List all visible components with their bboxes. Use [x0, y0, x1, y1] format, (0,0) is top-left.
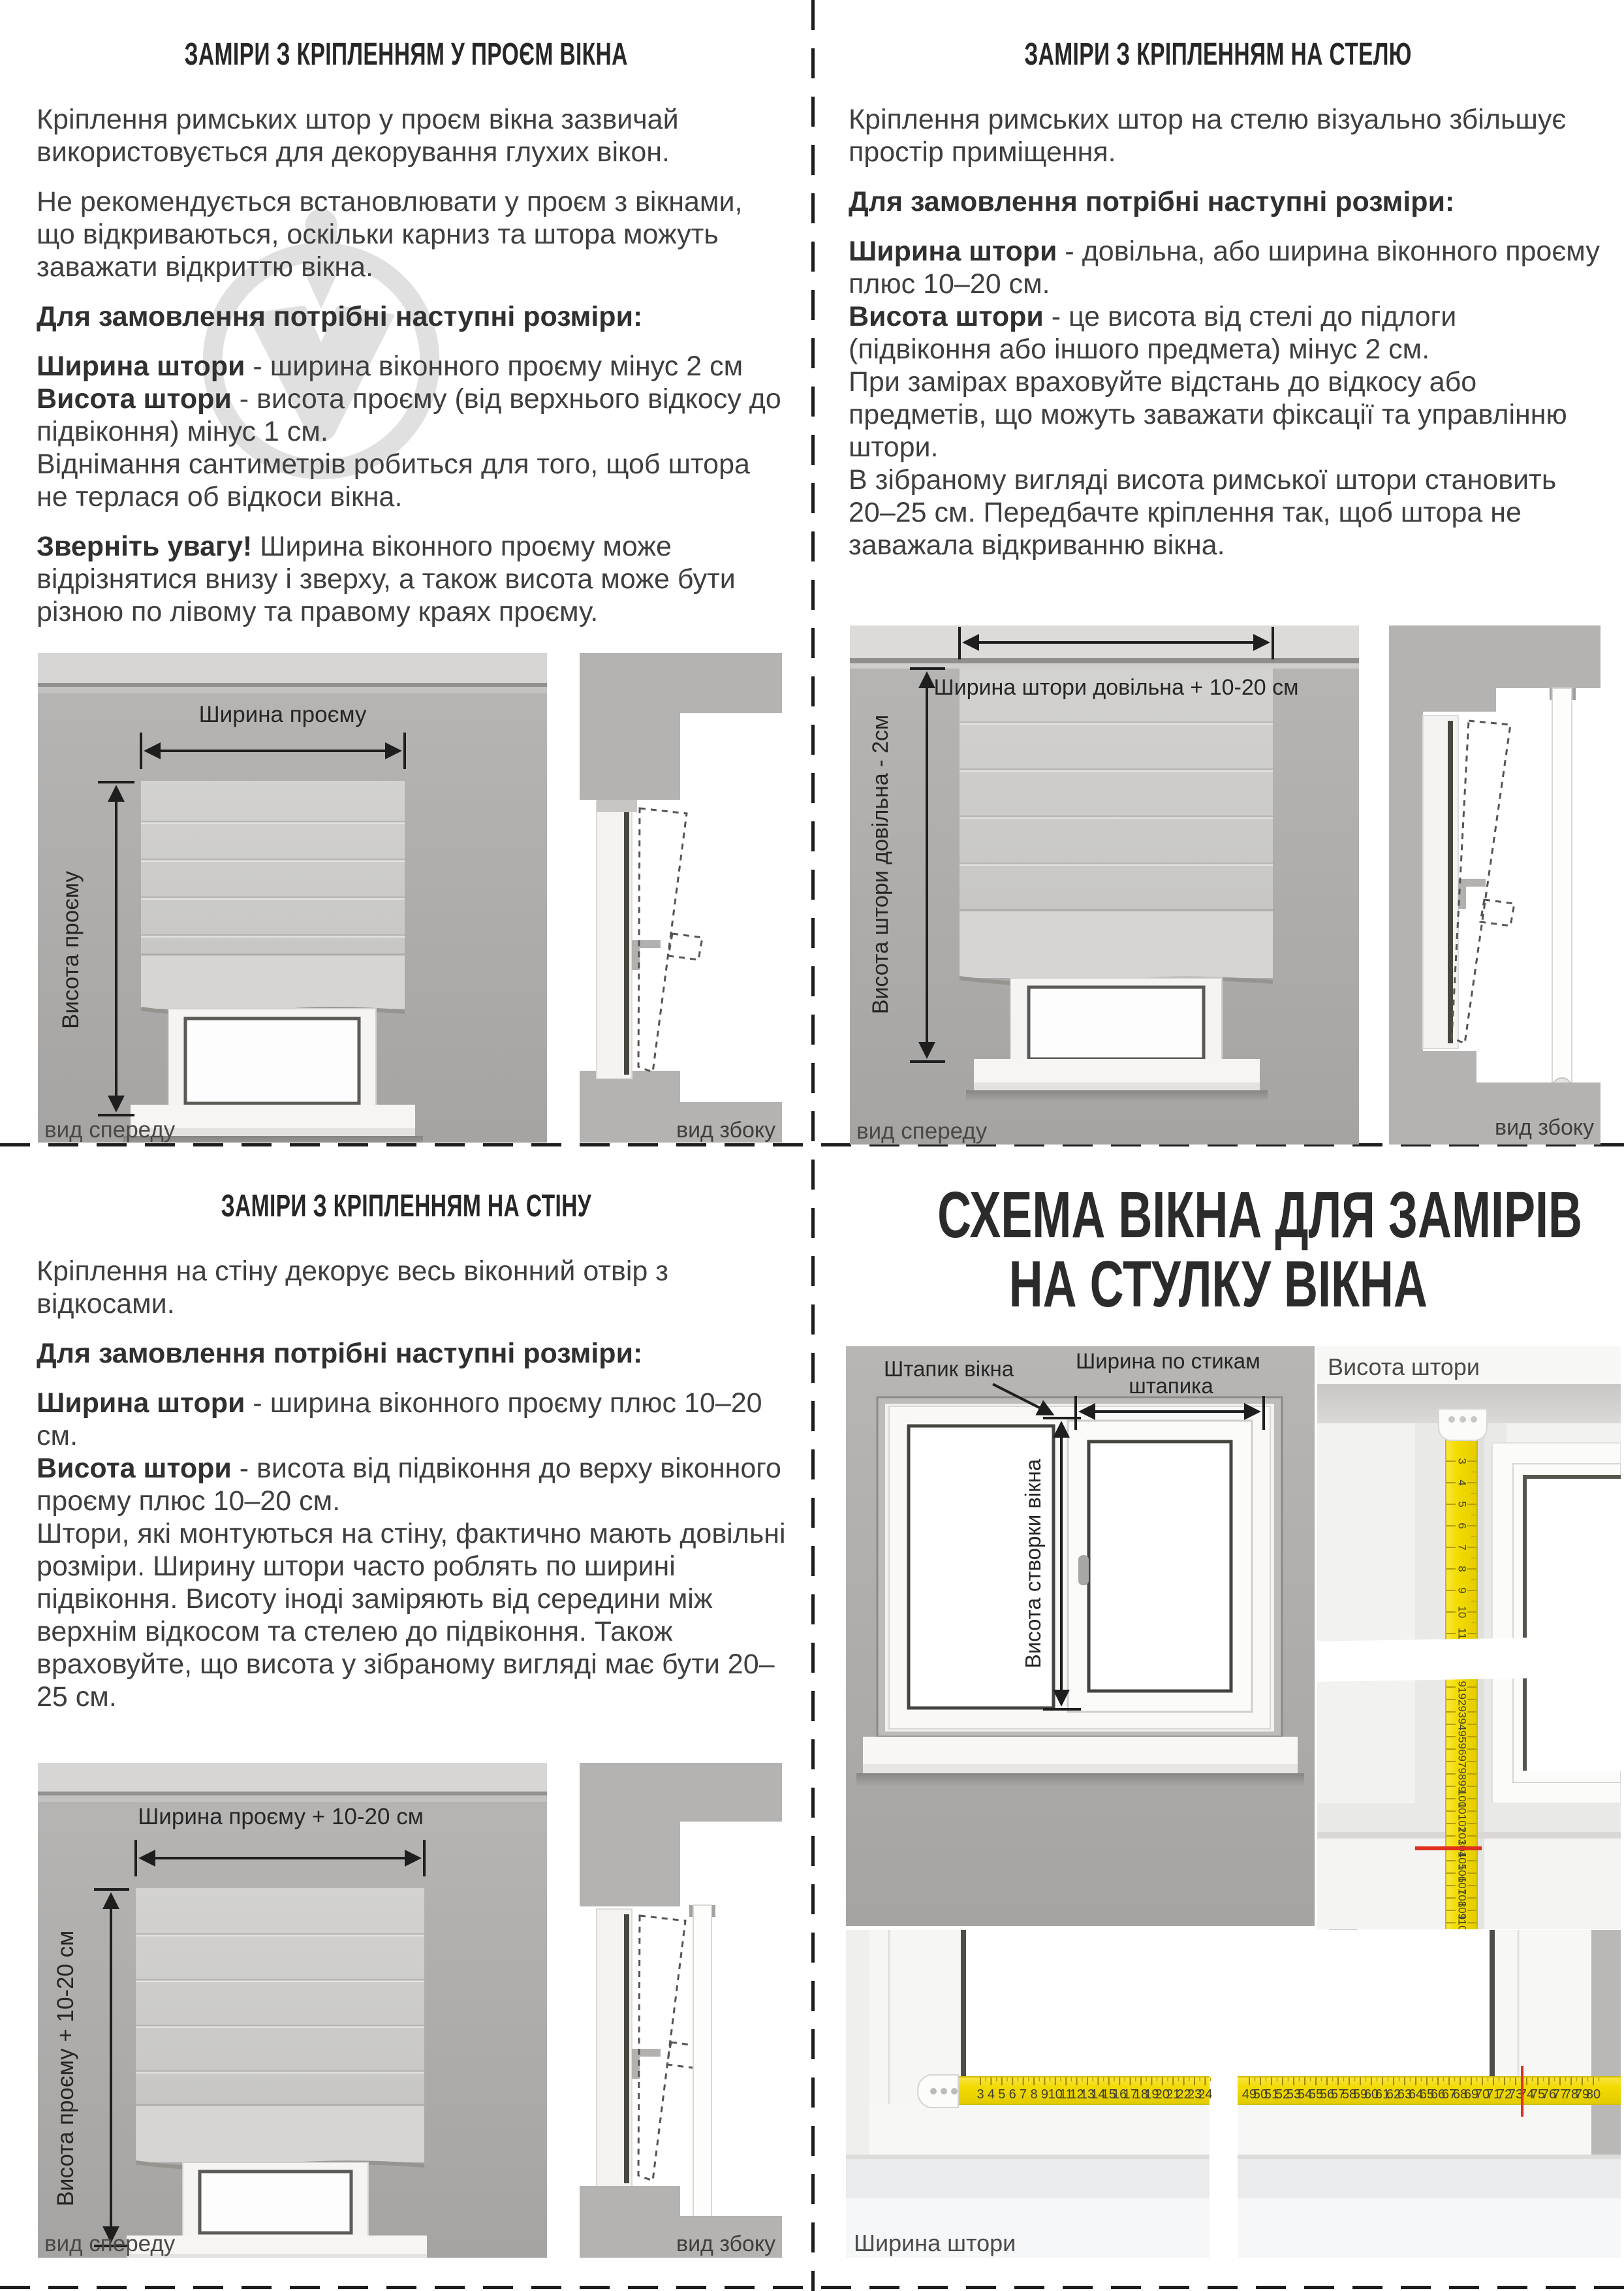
roman-blind-profile — [1550, 688, 1576, 1105]
note-paragraph: В зібраному вигляді висота римської штор… — [849, 464, 1606, 561]
tape-hook — [1439, 1409, 1487, 1440]
front-view-caption: вид спереду — [44, 2231, 176, 2256]
note-paragraph: При замірах враховуйте відстань до відко… — [849, 366, 1606, 464]
paragraph: Кріплення римських штор на стелю візуаль… — [849, 103, 1606, 168]
width-definition: Ширина штори - довільна, або ширина віко… — [849, 235, 1606, 300]
svg-text:10: 10 — [1456, 1606, 1469, 1619]
svg-text:6: 6 — [1009, 2087, 1016, 2102]
roman-blind — [136, 1888, 424, 2168]
svg-text:80: 80 — [1586, 2087, 1601, 2102]
side-view-caption: вид збоку — [676, 1118, 775, 1143]
wall-front-view-diagram: Ширина проєму + 10-20 см — [38, 1763, 547, 2258]
wall-side-view-diagram: вид збоку — [574, 1763, 782, 2258]
svg-text:4: 4 — [988, 2087, 995, 2102]
front-view-caption: вид спереду — [44, 1117, 176, 1143]
dimension-height-label: Висота штори довільна - 2см — [868, 715, 893, 1015]
tilted-sash-outline — [638, 1916, 701, 2181]
dimension-width-label: Ширина проєму + 10-20 см — [138, 1804, 424, 1829]
svg-text:8: 8 — [1030, 2087, 1037, 2102]
section-title: ЗАМІРИ З КРІПЛЕННЯМ НА СТЕЛЮ — [812, 37, 1624, 72]
window-handle-profile — [632, 2049, 661, 2079]
svg-text:95: 95 — [1456, 1731, 1469, 1743]
svg-text:8: 8 — [1456, 1566, 1469, 1572]
bottom-dashed-divider — [0, 2286, 1624, 2289]
window — [966, 978, 1268, 1101]
window-corner — [1492, 1443, 1621, 1803]
horizontal-dashed-divider — [0, 1143, 1624, 1146]
window-handle-profile — [1458, 879, 1486, 909]
svg-text:3: 3 — [976, 2087, 984, 2102]
note-paragraph: Віднімання сантиметрів робиться для того… — [37, 448, 789, 513]
right-sash-glass — [1089, 1442, 1231, 1691]
window-handle — [1078, 1555, 1089, 1585]
dimension-width-label: Ширина штори довільна + 10-20 см — [933, 675, 1298, 700]
section-title: СХЕМА ВІКНА ДЛЯ ЗАМІРІВ НА СТУЛКУ ВІКНА — [812, 1180, 1624, 1319]
glazing-bead-label: Штапик вікна — [884, 1357, 1014, 1381]
svg-text:24: 24 — [1198, 2087, 1212, 2102]
svg-text:6: 6 — [1456, 1523, 1469, 1528]
body-paragraph: Штори, які монтуються на стіну, фактично… — [37, 1517, 789, 1713]
measuring-instructions-page: ЗАМІРИ З КРІПЛЕННЯМ У ПРОЄМ ВІКНА Кріпле… — [0, 0, 1624, 2291]
svg-text:92: 92 — [1456, 1694, 1469, 1706]
svg-text:96: 96 — [1456, 1743, 1469, 1756]
side-view-caption: вид збоку — [676, 2232, 775, 2256]
dimension-width-label: Ширина проєму — [199, 702, 367, 727]
attention-paragraph: Зверніть увагу! Ширина віконного проєму … — [37, 530, 789, 628]
height-definition: Висота штори - це висота від стелі до пі… — [849, 300, 1606, 366]
roman-blind-profile — [689, 1905, 715, 2249]
ceiling-side-view-diagram: вид збоку — [1385, 625, 1601, 1145]
opening-front-view-diagram: Ширина проєму — [38, 653, 547, 1143]
section-text: Кріплення римських штор у проєм вікна за… — [37, 103, 789, 628]
svg-text:9: 9 — [1041, 2087, 1048, 2102]
order-heading: Для замовлення потрібні наступні розміри… — [37, 300, 789, 333]
curtain-width-photo: 3456789101112131415161718192021222324 49… — [846, 1930, 1621, 2258]
svg-text:110: 110 — [1456, 1914, 1469, 1929]
dimension-height-label: Висота проєму + 10-20 см — [53, 1931, 78, 2207]
section-title: ЗАМІРИ З КРІПЛЕННЯМ НА СТІНУ — [0, 1188, 812, 1224]
svg-text:7: 7 — [1020, 2087, 1027, 2102]
roman-blind — [141, 781, 405, 1015]
svg-text:5: 5 — [1456, 1501, 1469, 1507]
window-handle-profile — [632, 940, 661, 970]
svg-text:94: 94 — [1456, 1718, 1469, 1731]
paragraph: Кріплення римських штор у проєм вікна за… — [37, 103, 789, 168]
windowsill — [863, 1737, 1298, 1764]
sash-height-label: Висота створки вікна — [1021, 1459, 1045, 1668]
curtain-width-caption: Ширина штори — [854, 2230, 1016, 2256]
height-definition: Висота штори - висота проєму (від верхнь… — [37, 383, 789, 448]
svg-text:9: 9 — [1456, 1587, 1469, 1593]
side-view-caption: вид збоку — [1495, 1115, 1594, 1140]
svg-text:3: 3 — [1456, 1458, 1469, 1464]
order-heading: Для замовлення потрібні наступні розміри… — [849, 185, 1606, 218]
curtain-height-caption: Висота штори — [1328, 1353, 1480, 1380]
section-text: Кріплення римських штор на стелю візуаль… — [849, 103, 1606, 561]
paragraph: Не рекомендується встановлювати у проєм … — [37, 185, 789, 283]
height-definition: Висота штори - висота від підвіконня до … — [37, 1452, 789, 1517]
front-view-caption: вид спереду — [856, 1118, 988, 1144]
paragraph: Кріплення на стіну декорує весь віконний… — [37, 1255, 789, 1320]
svg-text:11: 11 — [1456, 1628, 1469, 1639]
section-title: ЗАМІРИ З КРІПЛЕННЯМ У ПРОЄМ ВІКНА — [0, 37, 812, 72]
roman-blind — [960, 669, 1273, 984]
opening-side-view-diagram: вид збоку — [574, 653, 782, 1143]
photo-splice-gap — [1317, 1636, 1621, 1682]
width-definition: Ширина штори - ширина віконного проєму м… — [37, 350, 789, 383]
section-text: Кріплення на стіну декорує весь віконний… — [37, 1255, 789, 1730]
sash-scheme-diagram: Штапик вікна Ширина по стикам штапика Ви… — [846, 1346, 1315, 1926]
svg-text:98: 98 — [1456, 1768, 1469, 1780]
order-heading: Для замовлення потрібні наступні розміри… — [37, 1337, 789, 1370]
svg-text:91: 91 — [1456, 1681, 1469, 1694]
dimension-height-label: Висота проєму — [58, 870, 84, 1029]
svg-text:4: 4 — [1456, 1479, 1469, 1485]
svg-text:5: 5 — [998, 2087, 1005, 2102]
svg-text:97: 97 — [1456, 1756, 1469, 1768]
ceiling-front-view-diagram: Ширина штори довільна + 10-20 см Висота … — [850, 625, 1359, 1145]
svg-text:93: 93 — [1456, 1706, 1469, 1718]
svg-text:7: 7 — [1456, 1544, 1469, 1550]
curtain-height-photo: 34567891011 9192939495969798991001011021… — [1317, 1346, 1621, 1929]
width-definition: Ширина штори - ширина віконного проєму п… — [37, 1387, 789, 1452]
